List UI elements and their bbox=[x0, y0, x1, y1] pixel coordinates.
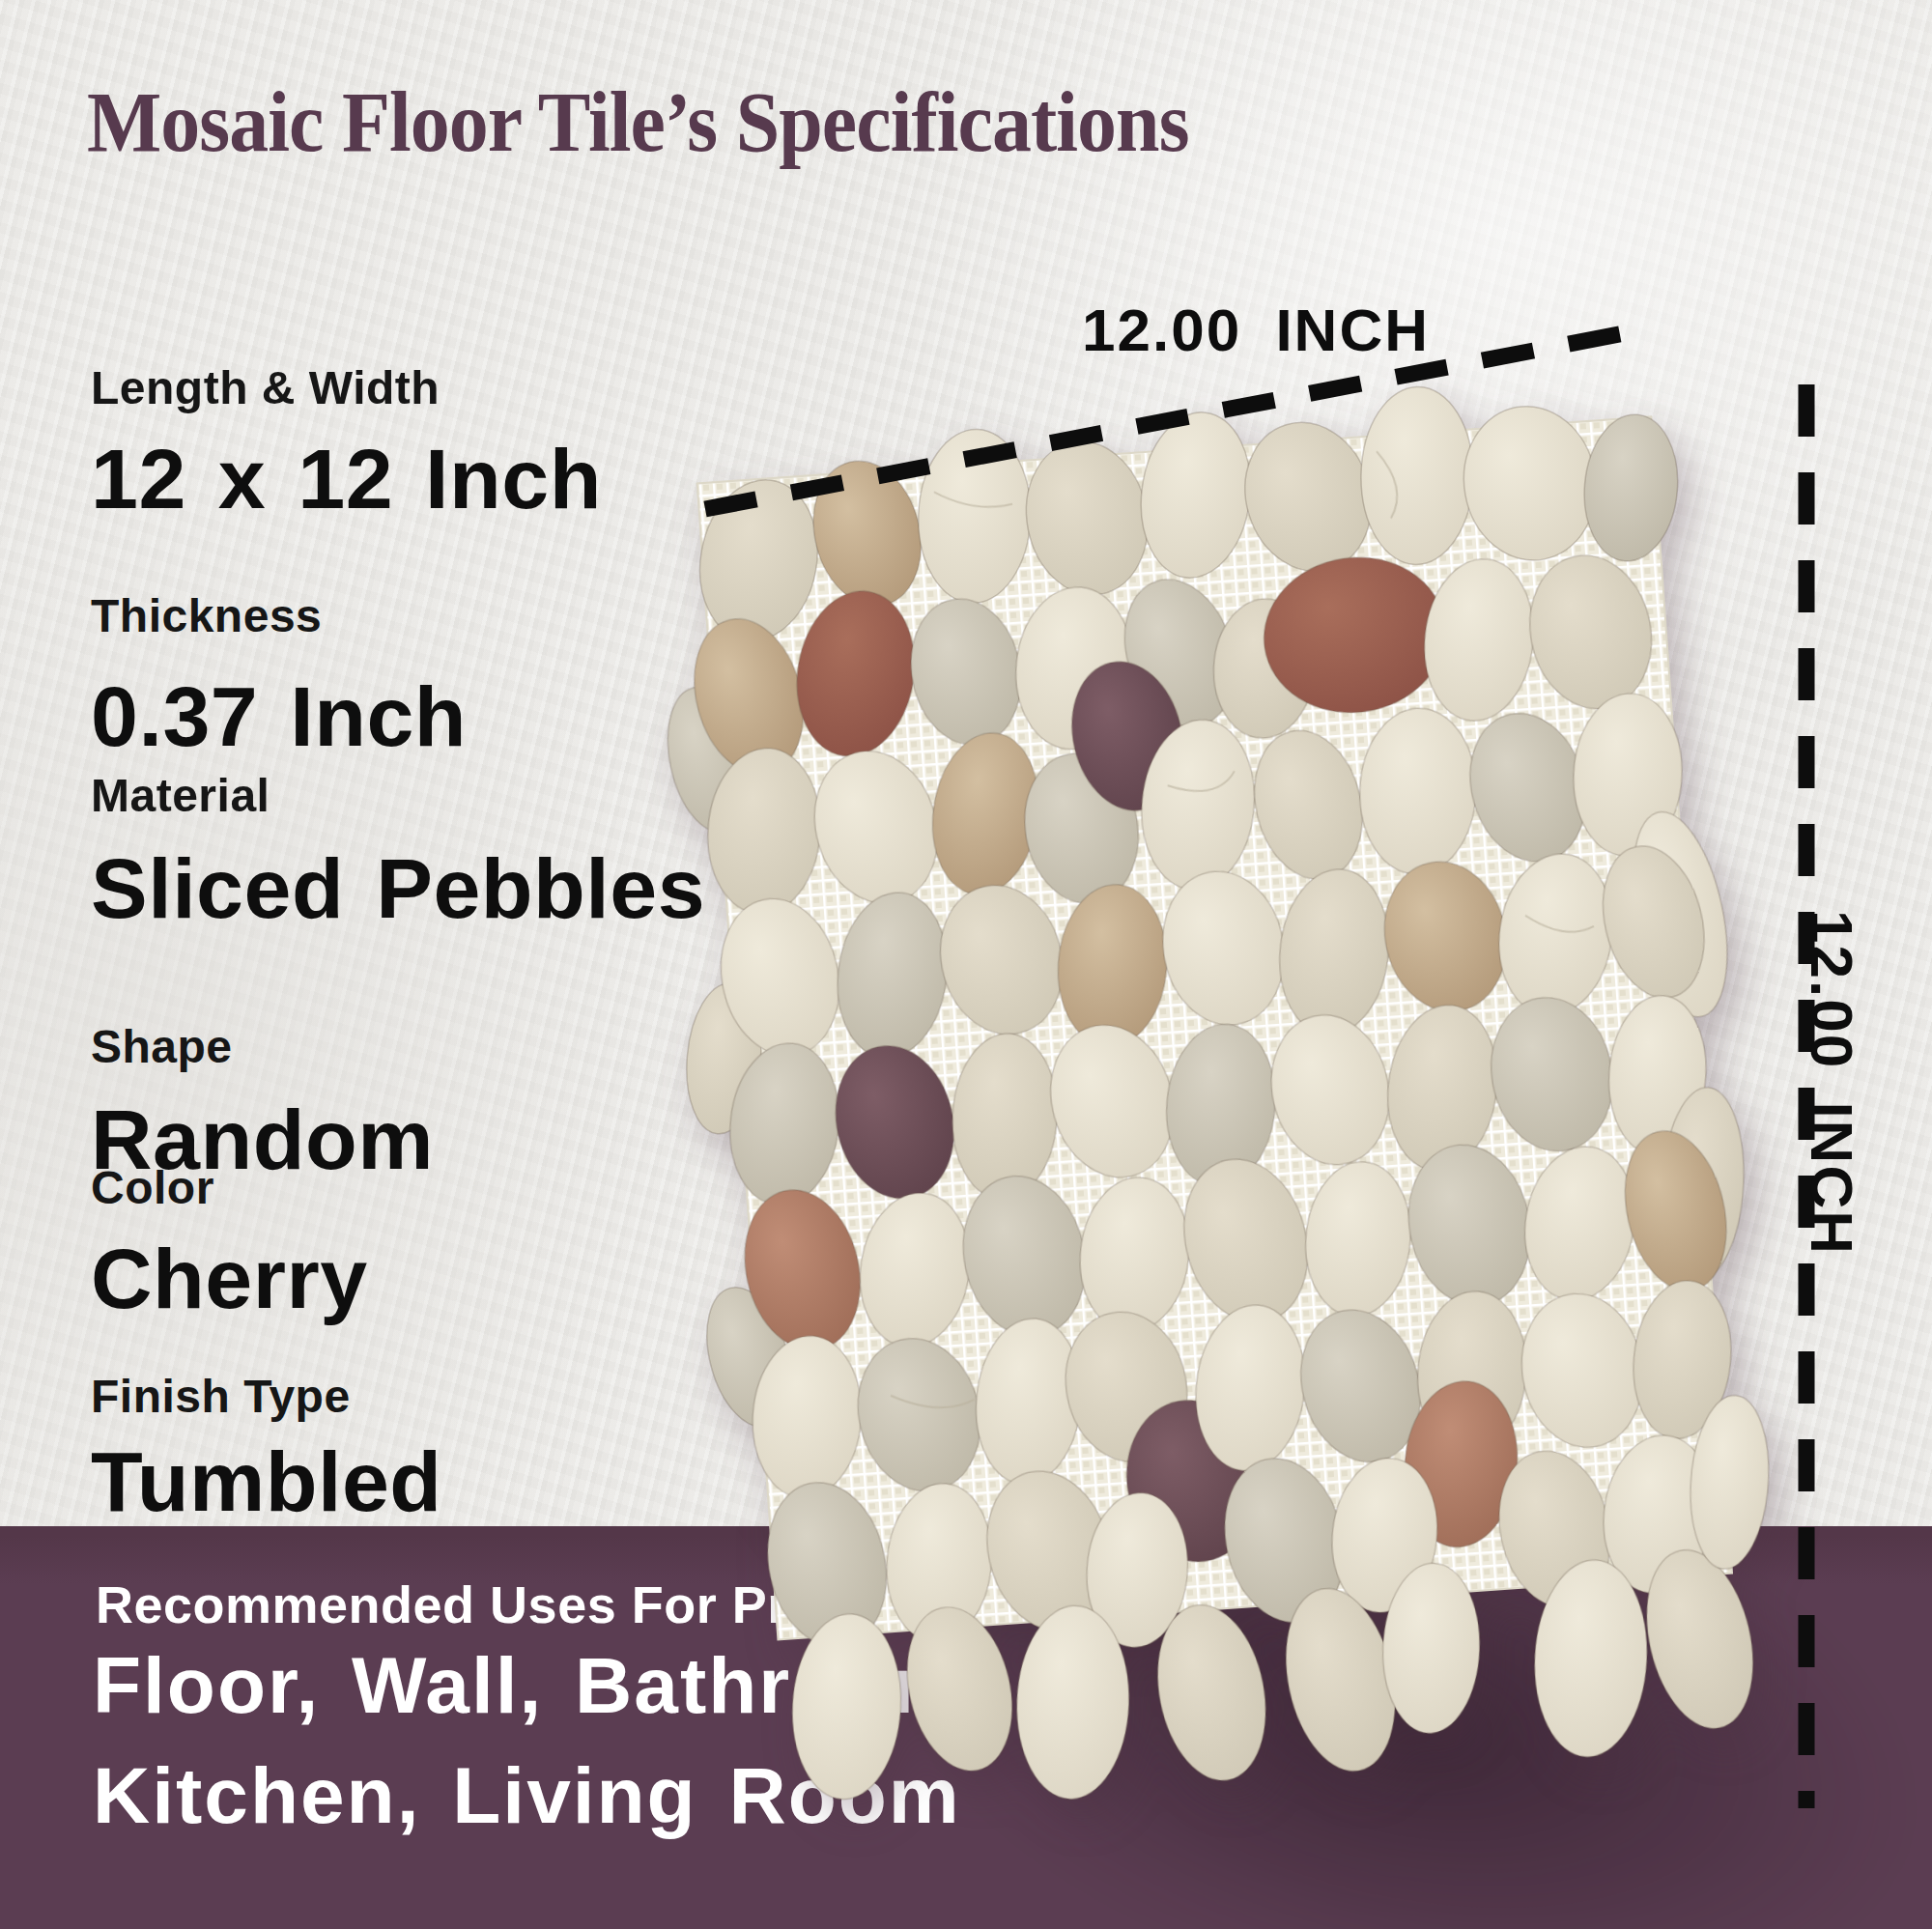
product-image bbox=[717, 406, 1731, 1806]
spec-label: Finish Type bbox=[91, 1370, 442, 1423]
height-dimension-label: 12.00 INCH bbox=[1798, 910, 1866, 1256]
spec-length-width: Length & Width 12 x 12 Inch bbox=[91, 361, 602, 528]
spec-label: Material bbox=[91, 769, 705, 822]
spec-value: Tumbled bbox=[91, 1433, 442, 1531]
spec-value: 0.37 Inch bbox=[91, 667, 467, 766]
width-dimension-label: 12.00 INCH bbox=[1082, 296, 1430, 364]
spec-label: Shape bbox=[91, 1020, 434, 1073]
spec-color: Color Cherry bbox=[91, 1161, 368, 1328]
page-title: Mosaic Floor Tile’s Specifications bbox=[87, 73, 1189, 171]
spec-label: Thickness bbox=[91, 589, 467, 642]
spec-value: Sliced Pebbles bbox=[91, 839, 705, 938]
spec-thickness: Thickness 0.37 Inch bbox=[91, 589, 467, 766]
spec-finish-type: Finish Type Tumbled bbox=[91, 1370, 442, 1531]
spec-label: Length & Width bbox=[91, 361, 602, 414]
spec-label: Color bbox=[91, 1161, 368, 1214]
spec-value: 12 x 12 Inch bbox=[91, 430, 602, 528]
spec-material: Material Sliced Pebbles bbox=[91, 769, 705, 938]
tile-group bbox=[632, 362, 1799, 1829]
spec-value: Cherry bbox=[91, 1230, 368, 1328]
